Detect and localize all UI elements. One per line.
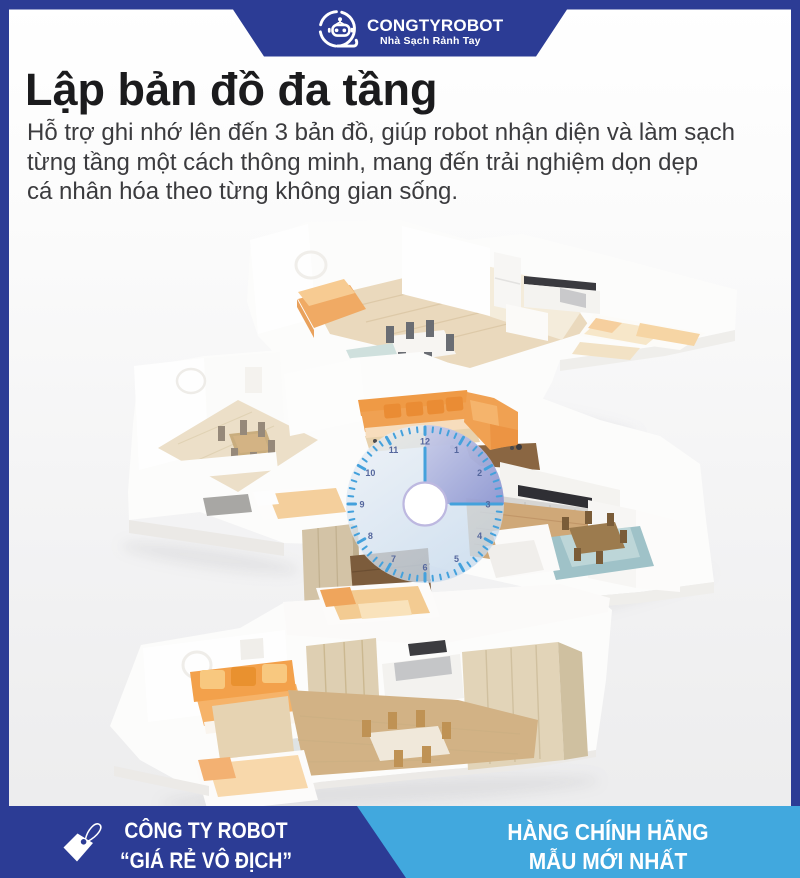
svg-text:10: 10: [365, 468, 375, 478]
svg-text:2: 2: [477, 468, 482, 478]
svg-text:12: 12: [420, 436, 430, 446]
svg-text:3: 3: [485, 499, 490, 509]
svg-text:11: 11: [389, 445, 399, 455]
svg-text:4: 4: [477, 531, 482, 541]
svg-text:9: 9: [359, 499, 364, 509]
svg-text:5: 5: [454, 554, 459, 564]
svg-text:6: 6: [422, 562, 427, 572]
svg-text:7: 7: [391, 554, 396, 564]
svg-text:1: 1: [454, 445, 459, 455]
svg-text:8: 8: [368, 531, 373, 541]
